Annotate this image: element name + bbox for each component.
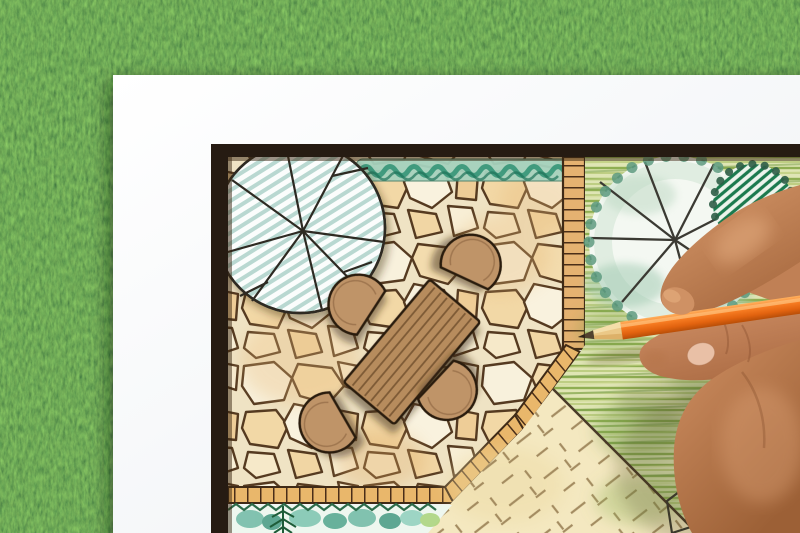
garden-plan-photo bbox=[0, 0, 800, 533]
photo-stage bbox=[0, 0, 800, 533]
planting-bed-bottom bbox=[228, 504, 452, 533]
hedge-strip bbox=[356, 159, 570, 181]
